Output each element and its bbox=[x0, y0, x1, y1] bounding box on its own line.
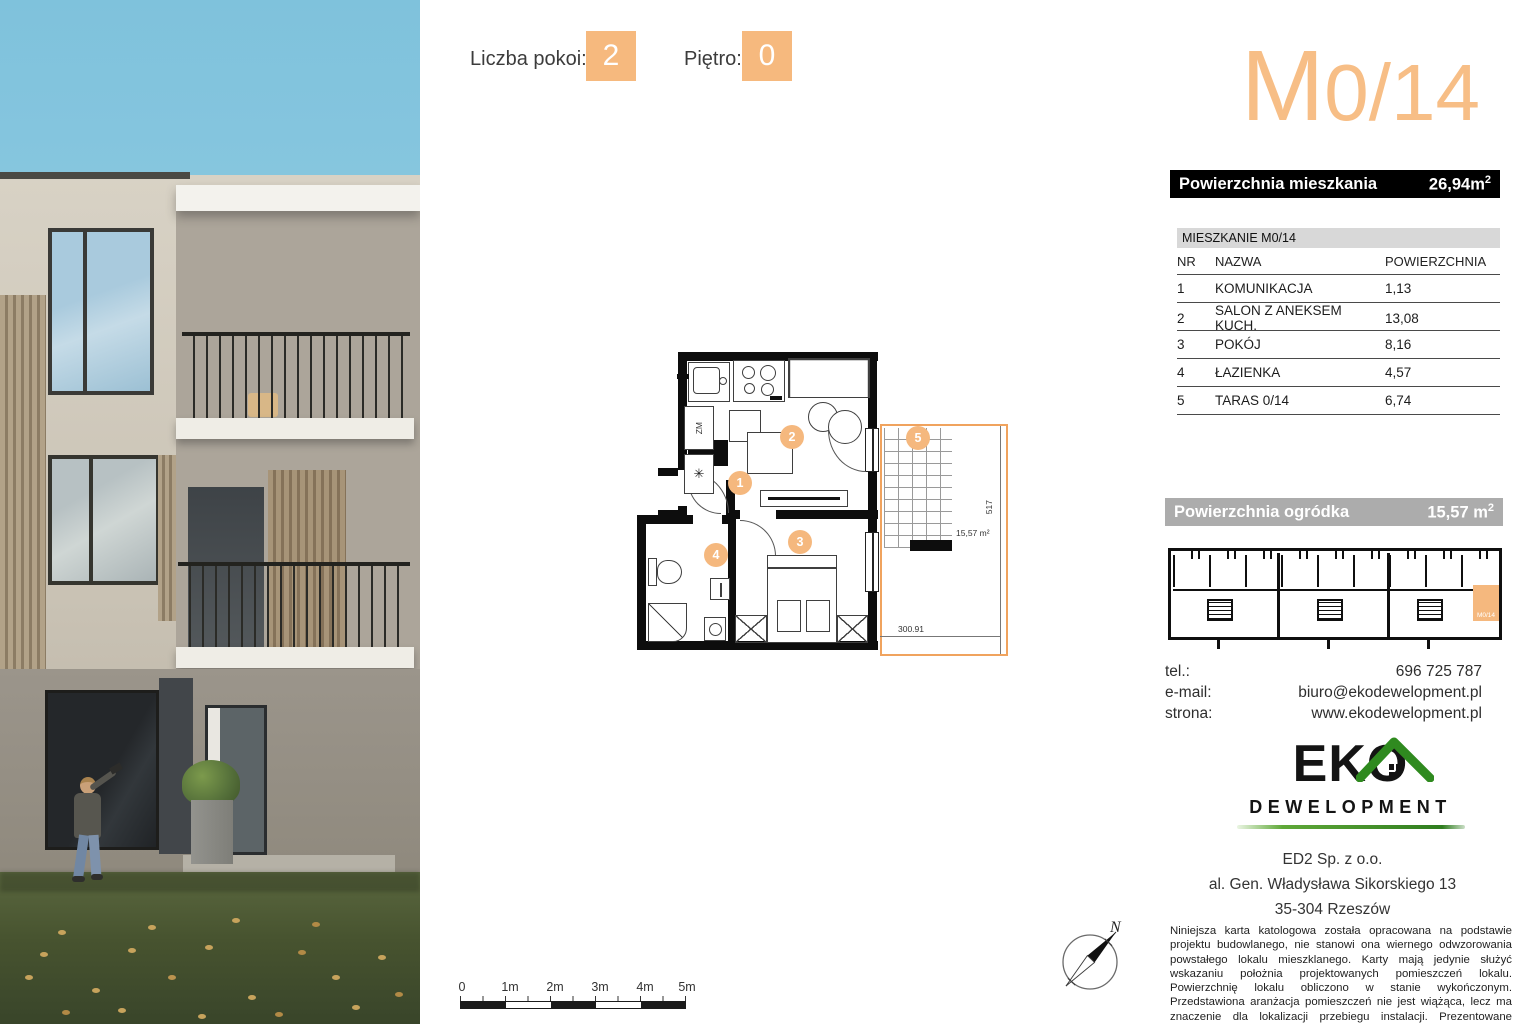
table-row: 3 POKÓJ 8,16 bbox=[1177, 331, 1500, 359]
rooms-table-title: MIESZKANIE M0/14 bbox=[1177, 228, 1500, 248]
washing-machine bbox=[704, 617, 726, 641]
building-locator: M0/14 bbox=[1168, 548, 1502, 640]
table-row: 4 ŁAZIENKA 4,57 bbox=[1177, 359, 1500, 387]
company-address: ED2 Sp. z o.o. al. Gen. Władysława Sikor… bbox=[1165, 848, 1500, 922]
locator-tick bbox=[1217, 640, 1220, 649]
balcony-slab-mid bbox=[176, 647, 414, 668]
address-line: al. Gen. Władysława Sikorskiego 13 bbox=[1165, 873, 1500, 898]
scale-label: 3m bbox=[591, 980, 608, 994]
kitchen-cabinet-zm: ZM bbox=[684, 406, 714, 450]
bedroom-door-arc bbox=[740, 520, 776, 556]
bathroom-cabinet bbox=[710, 578, 730, 600]
cell-nr: 2 bbox=[1177, 311, 1215, 326]
scale-segments bbox=[460, 1001, 686, 1009]
locator-divider bbox=[1277, 553, 1280, 637]
garden-area-value: 15,57 m2 bbox=[1427, 502, 1494, 523]
unit-title-suffix: 0/14 bbox=[1324, 48, 1480, 137]
wall bbox=[868, 470, 877, 532]
logo-subtitle: DEWELOPMENT bbox=[1228, 797, 1473, 818]
balcony-railing-top bbox=[182, 332, 410, 424]
rooms-value-box: 2 bbox=[586, 31, 636, 81]
wood-slats-mid bbox=[158, 455, 176, 621]
sofa bbox=[788, 358, 870, 398]
wall bbox=[637, 515, 646, 650]
locator-stairs bbox=[1317, 599, 1343, 621]
cell-name: KOMUNIKACJA bbox=[1215, 281, 1385, 296]
locator-divider bbox=[1387, 553, 1390, 637]
fallen-leaves bbox=[0, 0, 8, 5]
window-line bbox=[872, 533, 874, 591]
grass bbox=[0, 872, 420, 1024]
scale-bar: 0 1m 2m 3m 4m 5m bbox=[460, 980, 690, 1014]
toilet-tank bbox=[648, 558, 657, 586]
logo-wordmark: EKO bbox=[1293, 738, 1409, 790]
apartment-card-page: Liczba pokoi: 2 Piętro: 0 M0/14 Powierzc… bbox=[0, 0, 1536, 1024]
cell-area: 6,74 bbox=[1385, 393, 1500, 408]
floor-label: Piętro: bbox=[684, 48, 742, 71]
room-marker-1: 1 bbox=[728, 471, 752, 495]
sink-faucet bbox=[719, 377, 727, 385]
room-marker-5: 5 bbox=[906, 426, 930, 450]
cell-name: SALON Z ANEKSEM KUCH. bbox=[1215, 303, 1385, 333]
garden-area-label: Powierzchnia ogródka bbox=[1174, 503, 1349, 522]
contact-block: tel.: 696 725 787 e-mail: biuro@ekodewel… bbox=[1165, 663, 1482, 726]
burner bbox=[761, 383, 774, 396]
locator-unit-label: M0/14 bbox=[1477, 612, 1495, 619]
roof-soffit bbox=[176, 185, 420, 211]
web-value: www.ekodewelopment.pl bbox=[1311, 705, 1482, 726]
child-figure bbox=[60, 775, 118, 887]
fridge: ✳ bbox=[684, 454, 714, 494]
burner bbox=[760, 365, 776, 381]
col-name: NAZWA bbox=[1215, 254, 1385, 269]
cell-nr: 1 bbox=[1177, 281, 1215, 296]
building-photo bbox=[0, 0, 420, 1024]
child-shoe bbox=[72, 876, 85, 882]
balcony-railing-mid bbox=[178, 562, 410, 652]
contact-row-web: strona: www.ekodewelopment.pl bbox=[1165, 705, 1482, 726]
locator-highlighted-unit: M0/14 bbox=[1473, 585, 1499, 621]
contact-row-email: e-mail: biuro@ekodewelopment.pl bbox=[1165, 684, 1482, 705]
company-logo: EKO DEWELOPMENT bbox=[1228, 738, 1473, 829]
room-marker-2: 2 bbox=[780, 425, 804, 449]
rooms-label: Liczba pokoi: bbox=[470, 48, 587, 71]
wardrobe bbox=[837, 615, 868, 643]
cell-name: TARAS 0/14 bbox=[1215, 393, 1385, 408]
bed-duvet bbox=[777, 600, 801, 632]
address-line: 35-304 Rzeszów bbox=[1165, 898, 1500, 923]
contact-row-tel: tel.: 696 725 787 bbox=[1165, 663, 1482, 684]
wall bbox=[776, 510, 878, 519]
round-chair bbox=[828, 410, 862, 444]
disclaimer-text: Niniejsza karta katologowa została oprac… bbox=[1170, 924, 1512, 1024]
scale-label: 2m bbox=[546, 980, 563, 994]
scale-label: 5m bbox=[678, 980, 695, 994]
fridge-symbol: ✳ bbox=[694, 466, 705, 482]
bed-headline bbox=[768, 567, 836, 569]
sink-basin bbox=[693, 367, 720, 394]
cell-nr: 3 bbox=[1177, 337, 1215, 352]
locator-stairs bbox=[1207, 599, 1233, 621]
washer-drum bbox=[709, 623, 722, 636]
terrace-step bbox=[910, 540, 952, 551]
cell-name: POKÓJ bbox=[1215, 337, 1385, 352]
apartment-area-value: 26,94m2 bbox=[1429, 174, 1491, 195]
dim-line-vertical bbox=[1000, 426, 1001, 654]
dim-height-label: 517 bbox=[984, 500, 994, 514]
shower bbox=[648, 603, 687, 642]
locator-rooms bbox=[1173, 555, 1497, 587]
balcony-slab-top bbox=[176, 418, 414, 439]
table-row: 2 SALON Z ANEKSEM KUCH. 13,08 bbox=[1177, 303, 1500, 331]
sideboard-line bbox=[768, 497, 840, 500]
scale-label: 4m bbox=[636, 980, 653, 994]
cell-area: 13,08 bbox=[1385, 311, 1500, 326]
table-row: 1 KOMUNIKACJA 1,13 bbox=[1177, 275, 1500, 303]
stove bbox=[733, 360, 785, 402]
wall-stub bbox=[658, 468, 678, 476]
floor-value-box: 0 bbox=[742, 31, 792, 81]
locator-corridor-line bbox=[1173, 589, 1497, 591]
tel-value: 696 725 787 bbox=[1396, 663, 1482, 684]
stove-panel bbox=[770, 396, 782, 400]
cell-nr: 4 bbox=[1177, 365, 1215, 380]
child-leg-left bbox=[73, 835, 89, 880]
table-row: 5 TARAS 0/14 6,74 bbox=[1177, 387, 1500, 415]
terrace-area-label: 15,57 m² bbox=[956, 528, 990, 538]
bed-duvet bbox=[806, 600, 830, 632]
child-leg-right bbox=[89, 835, 102, 878]
rooms-table: MIESZKANIE M0/14 NR NAZWA POWIERZCHNIA 1… bbox=[1177, 228, 1500, 415]
dim-line-horizontal bbox=[880, 636, 1001, 637]
scale-label: 0 bbox=[459, 980, 466, 994]
cell-area: 8,16 bbox=[1385, 337, 1500, 352]
scale-label: 1m bbox=[501, 980, 518, 994]
email-value: biuro@ekodewelopment.pl bbox=[1298, 684, 1482, 705]
logo-underline bbox=[1237, 825, 1465, 829]
terrace-door bbox=[865, 428, 879, 472]
room-marker-4: 4 bbox=[704, 543, 728, 567]
cell-area: 4,57 bbox=[1385, 365, 1500, 380]
address-line: ED2 Sp. z o.o. bbox=[1165, 848, 1500, 873]
dim-width-label: 300.91 bbox=[898, 624, 924, 634]
zm-label: ZM bbox=[694, 422, 704, 434]
wardrobe bbox=[735, 615, 767, 643]
facade-parapet bbox=[0, 172, 190, 179]
window-top bbox=[48, 228, 154, 395]
toilet-bowl bbox=[657, 560, 682, 584]
ground-dark-panel bbox=[159, 678, 193, 854]
cell-name: ŁAZIENKA bbox=[1215, 365, 1385, 380]
sideboard bbox=[760, 490, 848, 507]
wall-stub bbox=[658, 510, 678, 518]
apartment-area-bar: Powierzchnia mieszkania 26,94m2 bbox=[1170, 170, 1500, 198]
locator-tick bbox=[1327, 640, 1330, 649]
window-mullion bbox=[89, 459, 93, 581]
child-body bbox=[74, 793, 101, 838]
burner bbox=[744, 383, 755, 394]
cell-nr: 5 bbox=[1177, 393, 1215, 408]
bed bbox=[767, 555, 837, 643]
locator-tick bbox=[1427, 640, 1430, 649]
compass-north-label: N bbox=[1109, 919, 1122, 936]
logo-house-roof-icon bbox=[1356, 730, 1434, 782]
floor-plan: ZM ✳ 15 bbox=[600, 340, 1060, 685]
unit-title: M0/14 bbox=[1100, 40, 1480, 132]
garden-area-bar: Powierzchnia ogródka 15,57 m2 bbox=[1165, 498, 1503, 526]
cabinet-handle bbox=[720, 583, 722, 597]
child-shoe bbox=[91, 874, 103, 880]
bedroom-window bbox=[865, 532, 879, 592]
web-label: strona: bbox=[1165, 705, 1212, 726]
tel-label: tel.: bbox=[1165, 663, 1190, 684]
burner bbox=[742, 366, 755, 379]
cell-area: 1,13 bbox=[1385, 281, 1500, 296]
kitchen-sink bbox=[688, 362, 730, 402]
rooms-table-header: NR NAZWA POWIERZCHNIA bbox=[1177, 248, 1500, 275]
col-nr: NR bbox=[1177, 254, 1215, 269]
window-mullion bbox=[83, 232, 87, 391]
window-mid bbox=[48, 455, 160, 585]
compass-icon: N bbox=[1054, 918, 1132, 1000]
tap-stub bbox=[677, 374, 689, 379]
unit-title-prefix: M bbox=[1241, 30, 1324, 142]
apartment-area-label: Powierzchnia mieszkania bbox=[1179, 175, 1377, 194]
col-area: POWIERZCHNIA bbox=[1385, 254, 1500, 269]
door-line bbox=[872, 429, 874, 471]
locator-stairs bbox=[1417, 599, 1443, 621]
email-label: e-mail: bbox=[1165, 684, 1212, 705]
room-marker-3: 3 bbox=[788, 530, 812, 554]
planter-box bbox=[191, 800, 233, 864]
